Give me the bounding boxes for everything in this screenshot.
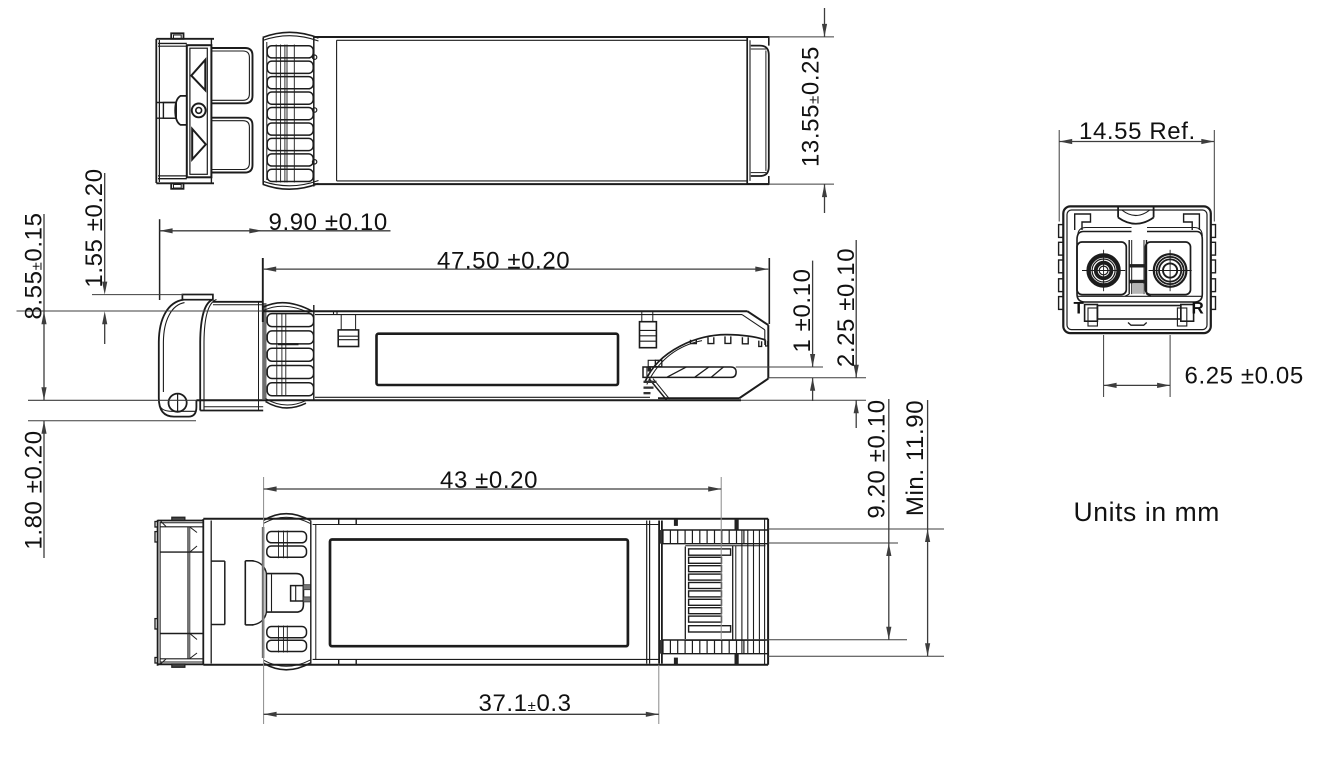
svg-text:47.50 ±0.20: 47.50 ±0.20: [437, 247, 570, 274]
svg-text:R: R: [1192, 299, 1205, 318]
svg-text:9.90 ±0.10: 9.90 ±0.10: [269, 209, 388, 236]
svg-text:1.55 ±0.20: 1.55 ±0.20: [81, 168, 108, 287]
svg-text:1 ±0.10: 1 ±0.10: [789, 268, 816, 352]
svg-text:1.80 ±0.20: 1.80 ±0.20: [21, 430, 48, 549]
svg-text:2.25 ±0.10: 2.25 ±0.10: [833, 248, 860, 367]
svg-text:14.55 Ref.: 14.55 Ref.: [1079, 118, 1196, 145]
svg-text:43 ±0.20: 43 ±0.20: [440, 467, 538, 494]
svg-text:T: T: [1074, 299, 1085, 318]
svg-text:9.20 ±0.10: 9.20 ±0.10: [863, 399, 890, 518]
svg-text:Units in mm: Units in mm: [1074, 497, 1220, 527]
svg-text:Min. 11.90: Min. 11.90: [902, 400, 929, 516]
svg-text:6.25 ±0.05: 6.25 ±0.05: [1185, 363, 1304, 390]
svg-text:37.1±0.3: 37.1±0.3: [479, 690, 572, 717]
svg-text:13.55±0.25: 13.55±0.25: [798, 46, 825, 167]
